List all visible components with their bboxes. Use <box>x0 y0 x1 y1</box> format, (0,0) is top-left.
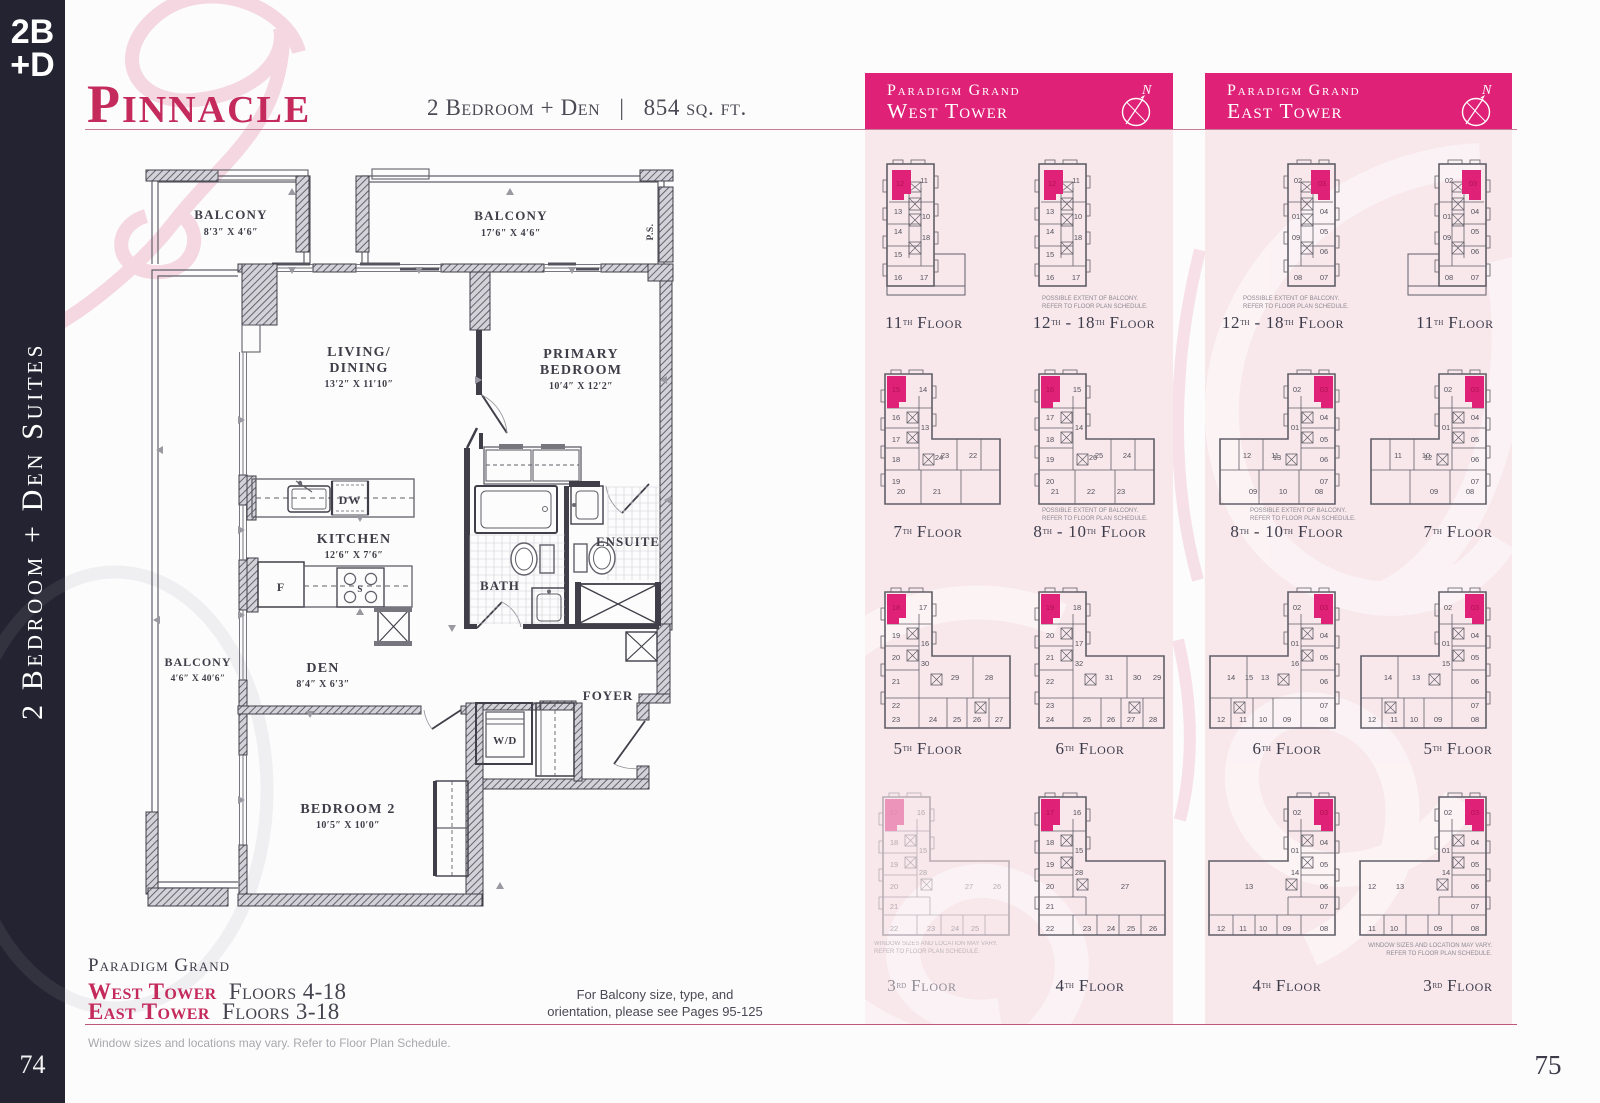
svg-text:03: 03 <box>1469 179 1477 188</box>
svg-text:01: 01 <box>1442 846 1450 855</box>
svg-text:8′3″ X 4′6″: 8′3″ X 4′6″ <box>204 227 258 238</box>
svg-text:08: 08 <box>1320 924 1328 933</box>
svg-text:02: 02 <box>1294 176 1302 185</box>
svg-text:17′6″ X 4′6″: 17′6″ X 4′6″ <box>481 228 541 239</box>
svg-text:16: 16 <box>894 273 902 282</box>
svg-text:24: 24 <box>1046 715 1054 724</box>
svg-text:10′5″ X 10′0″: 10′5″ X 10′0″ <box>316 820 380 831</box>
svg-text:06: 06 <box>1471 677 1479 686</box>
svg-text:13: 13 <box>1396 882 1404 891</box>
svg-text:13: 13 <box>921 423 929 432</box>
svg-text:14: 14 <box>894 227 902 236</box>
svg-text:03: 03 <box>1471 808 1479 817</box>
svg-text:BATH: BATH <box>480 578 520 593</box>
svg-text:26: 26 <box>1149 924 1157 933</box>
svg-text:31: 31 <box>1105 673 1113 682</box>
svg-text:07: 07 <box>1471 477 1479 486</box>
svg-text:02: 02 <box>1444 603 1452 612</box>
svg-text:04: 04 <box>1471 413 1479 422</box>
svg-text:04: 04 <box>1320 838 1328 847</box>
svg-text:17: 17 <box>1075 639 1083 648</box>
svg-text:17: 17 <box>919 603 927 612</box>
svg-text:04: 04 <box>1320 207 1328 216</box>
svg-text:22: 22 <box>1087 487 1095 496</box>
svg-text:32: 32 <box>1075 659 1083 668</box>
svg-text:09: 09 <box>1249 487 1257 496</box>
svg-text:27: 27 <box>1121 882 1129 891</box>
svg-text:04: 04 <box>1471 207 1479 216</box>
svg-text:DEN: DEN <box>306 661 339 676</box>
svg-text:10: 10 <box>1259 715 1267 724</box>
svg-text:26: 26 <box>993 882 1001 891</box>
svg-text:26: 26 <box>973 715 981 724</box>
svg-text:28: 28 <box>985 673 993 682</box>
svg-text:05: 05 <box>1471 227 1479 236</box>
svg-text:10: 10 <box>1390 924 1398 933</box>
svg-text:F: F <box>277 580 285 594</box>
svg-text:06: 06 <box>1471 882 1479 891</box>
svg-text:08: 08 <box>1471 924 1479 933</box>
svg-text:12: 12 <box>1048 179 1056 188</box>
svg-text:27: 27 <box>965 882 973 891</box>
svg-text:18: 18 <box>922 233 930 242</box>
svg-text:08: 08 <box>1294 273 1302 282</box>
svg-text:03: 03 <box>1320 808 1328 817</box>
svg-text:21: 21 <box>1051 487 1059 496</box>
svg-text:30: 30 <box>1133 673 1141 682</box>
svg-text:12: 12 <box>1217 715 1225 724</box>
svg-text:09: 09 <box>1283 715 1291 724</box>
svg-text:23: 23 <box>1117 487 1125 496</box>
svg-text:20: 20 <box>890 882 898 891</box>
svg-text:13: 13 <box>1412 673 1420 682</box>
svg-text:ENSUITE: ENSUITE <box>596 534 660 549</box>
svg-text:15: 15 <box>1245 673 1253 682</box>
svg-text:09: 09 <box>1283 924 1291 933</box>
svg-text:21: 21 <box>1046 653 1054 662</box>
svg-text:14: 14 <box>1227 673 1235 682</box>
svg-text:S: S <box>357 584 362 594</box>
svg-text:11: 11 <box>920 176 928 185</box>
svg-text:17: 17 <box>890 808 898 817</box>
svg-text:29: 29 <box>951 673 959 682</box>
svg-text:06: 06 <box>1320 882 1328 891</box>
svg-text:19: 19 <box>1046 603 1054 612</box>
svg-text:25: 25 <box>971 924 979 933</box>
svg-text:26: 26 <box>1107 715 1115 724</box>
svg-text:08: 08 <box>1466 487 1474 496</box>
svg-text:03: 03 <box>1320 603 1328 612</box>
svg-text:11: 11 <box>1368 924 1376 933</box>
svg-text:08: 08 <box>1445 273 1453 282</box>
svg-text:09: 09 <box>1430 487 1438 496</box>
svg-text:17: 17 <box>920 273 928 282</box>
svg-text:07: 07 <box>1471 273 1479 282</box>
svg-text:21: 21 <box>933 487 941 496</box>
svg-text:23: 23 <box>1046 701 1054 710</box>
svg-text:11: 11 <box>1394 451 1402 460</box>
svg-text:18: 18 <box>1046 435 1054 444</box>
svg-text:27: 27 <box>995 715 1003 724</box>
svg-text:21: 21 <box>892 677 900 686</box>
svg-text:15: 15 <box>1075 846 1083 855</box>
svg-text:W/D: W/D <box>493 735 517 747</box>
svg-text:01: 01 <box>1291 846 1299 855</box>
svg-text:P.S.: P.S. <box>646 224 656 241</box>
svg-text:02: 02 <box>1444 808 1452 817</box>
svg-text:23: 23 <box>927 924 935 933</box>
svg-text:14: 14 <box>1046 227 1054 236</box>
svg-text:12′6″ X 7′6″: 12′6″ X 7′6″ <box>325 550 384 561</box>
svg-text:01: 01 <box>1291 423 1299 432</box>
svg-text:11: 11 <box>1390 715 1398 724</box>
svg-text:25: 25 <box>1083 715 1091 724</box>
svg-text:19: 19 <box>1046 455 1054 464</box>
svg-text:14: 14 <box>1442 868 1450 877</box>
svg-text:05: 05 <box>1320 653 1328 662</box>
svg-text:03: 03 <box>1471 385 1479 394</box>
svg-text:17: 17 <box>1046 808 1054 817</box>
svg-text:15: 15 <box>892 385 900 394</box>
svg-text:16: 16 <box>921 639 929 648</box>
svg-text:22: 22 <box>892 701 900 710</box>
svg-text:18: 18 <box>890 838 898 847</box>
svg-text:14: 14 <box>1291 868 1299 877</box>
svg-text:08: 08 <box>1471 715 1479 724</box>
svg-text:16: 16 <box>1073 808 1081 817</box>
svg-text:20: 20 <box>1046 477 1054 486</box>
svg-text:FOYER: FOYER <box>583 688 634 703</box>
svg-text:BALCONY: BALCONY <box>474 208 547 223</box>
svg-text:11: 11 <box>1072 176 1080 185</box>
svg-text:07: 07 <box>1320 477 1328 486</box>
svg-text:12: 12 <box>896 179 904 188</box>
svg-text:13′2″ X 11′10″: 13′2″ X 11′10″ <box>325 379 394 390</box>
svg-text:20: 20 <box>892 653 900 662</box>
svg-text:02: 02 <box>1293 385 1301 394</box>
svg-text:04: 04 <box>1471 631 1479 640</box>
svg-text:04: 04 <box>1471 838 1479 847</box>
svg-text:05: 05 <box>1320 860 1328 869</box>
svg-text:09: 09 <box>1292 233 1300 242</box>
svg-text:20: 20 <box>897 487 905 496</box>
svg-text:16: 16 <box>1046 385 1054 394</box>
svg-text:27: 27 <box>1127 715 1135 724</box>
svg-text:08: 08 <box>1320 715 1328 724</box>
svg-text:13: 13 <box>1245 882 1253 891</box>
svg-text:06: 06 <box>1320 677 1328 686</box>
svg-text:06: 06 <box>1320 247 1328 256</box>
svg-text:28: 28 <box>1075 868 1083 877</box>
svg-text:05: 05 <box>1471 435 1479 444</box>
svg-text:01: 01 <box>1442 639 1450 648</box>
svg-text:24: 24 <box>1107 924 1115 933</box>
svg-text:01: 01 <box>1442 423 1450 432</box>
svg-text:10: 10 <box>1074 212 1082 221</box>
svg-text:17: 17 <box>892 435 900 444</box>
svg-text:19: 19 <box>890 860 898 869</box>
svg-text:09: 09 <box>1443 233 1451 242</box>
svg-text:12: 12 <box>1217 924 1225 933</box>
svg-text:09: 09 <box>1434 715 1442 724</box>
svg-text:01: 01 <box>1292 212 1300 221</box>
svg-text:17: 17 <box>1072 273 1080 282</box>
svg-text:18: 18 <box>892 455 900 464</box>
svg-text:14: 14 <box>1075 423 1083 432</box>
svg-text:13: 13 <box>1261 673 1269 682</box>
svg-text:13: 13 <box>894 207 902 216</box>
svg-text:14: 14 <box>919 385 927 394</box>
svg-text:07: 07 <box>1320 902 1328 911</box>
svg-text:4′6″ X 40′6″: 4′6″ X 40′6″ <box>171 674 226 684</box>
svg-text:07: 07 <box>1471 701 1479 710</box>
svg-text:DW: DW <box>339 493 362 507</box>
svg-text:19: 19 <box>892 477 900 486</box>
svg-text:07: 07 <box>1320 273 1328 282</box>
svg-text:08: 08 <box>1315 487 1323 496</box>
svg-text:15: 15 <box>919 846 927 855</box>
svg-text:02: 02 <box>1293 808 1301 817</box>
svg-text:06: 06 <box>1471 455 1479 464</box>
svg-text:07: 07 <box>1471 902 1479 911</box>
svg-text:22: 22 <box>1046 677 1054 686</box>
svg-text:19: 19 <box>892 631 900 640</box>
svg-text:10: 10 <box>1422 451 1430 460</box>
svg-text:KITCHEN: KITCHEN <box>317 532 392 547</box>
svg-text:05: 05 <box>1471 653 1479 662</box>
svg-text:22: 22 <box>1046 924 1054 933</box>
svg-text:16: 16 <box>1046 273 1054 282</box>
svg-text:21: 21 <box>1046 902 1054 911</box>
svg-text:10: 10 <box>1410 715 1418 724</box>
svg-text:16: 16 <box>892 413 900 422</box>
svg-text:05: 05 <box>1320 227 1328 236</box>
svg-text:04: 04 <box>1320 631 1328 640</box>
svg-text:18: 18 <box>1074 233 1082 242</box>
svg-text:01: 01 <box>1443 212 1451 221</box>
svg-text:BEDROOM 2: BEDROOM 2 <box>300 802 395 817</box>
svg-text:25: 25 <box>953 715 961 724</box>
svg-text:03: 03 <box>1318 179 1326 188</box>
svg-text:BALCONY: BALCONY <box>164 655 231 669</box>
svg-text:15: 15 <box>1442 659 1450 668</box>
svg-text:29: 29 <box>1153 673 1161 682</box>
svg-text:20: 20 <box>1046 631 1054 640</box>
svg-text:LIVING/: LIVING/ <box>327 345 391 360</box>
svg-text:03: 03 <box>1320 385 1328 394</box>
svg-text:02: 02 <box>1445 176 1453 185</box>
svg-text:BALCONY: BALCONY <box>194 207 267 222</box>
svg-text:PRIMARY: PRIMARY <box>543 347 619 362</box>
svg-text:23: 23 <box>1083 924 1091 933</box>
svg-text:11: 11 <box>1271 451 1279 460</box>
svg-text:10: 10 <box>1259 924 1267 933</box>
svg-text:28: 28 <box>1149 715 1157 724</box>
svg-text:25: 25 <box>1127 924 1135 933</box>
svg-text:06: 06 <box>1320 455 1328 464</box>
svg-text:04: 04 <box>1320 413 1328 422</box>
svg-text:12: 12 <box>1368 715 1376 724</box>
svg-text:DINING: DINING <box>329 361 388 376</box>
svg-text:17: 17 <box>1046 413 1054 422</box>
svg-text:19: 19 <box>1046 860 1054 869</box>
svg-text:10′4″ X 12′2″: 10′4″ X 12′2″ <box>549 381 613 392</box>
svg-text:23: 23 <box>941 451 949 460</box>
svg-text:11: 11 <box>1239 715 1247 724</box>
svg-text:25: 25 <box>1095 451 1103 460</box>
svg-text:BEDROOM: BEDROOM <box>540 363 622 378</box>
svg-text:10: 10 <box>922 212 930 221</box>
svg-text:18: 18 <box>892 603 900 612</box>
svg-text:09: 09 <box>1434 924 1442 933</box>
svg-text:05: 05 <box>1471 860 1479 869</box>
svg-text:8′4″ X 6′3″: 8′4″ X 6′3″ <box>296 679 349 690</box>
svg-text:02: 02 <box>1293 603 1301 612</box>
svg-text:01: 01 <box>1291 639 1299 648</box>
svg-text:07: 07 <box>1320 701 1328 710</box>
svg-text:22: 22 <box>969 451 977 460</box>
svg-text:N: N <box>1481 83 1492 98</box>
svg-text:24: 24 <box>951 924 959 933</box>
svg-text:14: 14 <box>1384 673 1392 682</box>
svg-text:11: 11 <box>1239 924 1247 933</box>
svg-text:16: 16 <box>1291 659 1299 668</box>
svg-text:12: 12 <box>1368 882 1376 891</box>
svg-text:23: 23 <box>892 715 900 724</box>
svg-text:24: 24 <box>929 715 937 724</box>
svg-text:18: 18 <box>1073 603 1081 612</box>
svg-text:30: 30 <box>921 659 929 668</box>
svg-text:28: 28 <box>919 868 927 877</box>
svg-text:15: 15 <box>894 250 902 259</box>
svg-text:15: 15 <box>1046 250 1054 259</box>
svg-text:18: 18 <box>1046 838 1054 847</box>
svg-text:20: 20 <box>1046 882 1054 891</box>
svg-text:24: 24 <box>1123 451 1131 460</box>
svg-text:10: 10 <box>1279 487 1287 496</box>
svg-text:02: 02 <box>1444 385 1452 394</box>
svg-text:N: N <box>1141 83 1152 98</box>
svg-text:22: 22 <box>890 924 898 933</box>
svg-text:15: 15 <box>1073 385 1081 394</box>
svg-text:03: 03 <box>1471 603 1479 612</box>
svg-text:12: 12 <box>1243 451 1251 460</box>
svg-text:05: 05 <box>1320 435 1328 444</box>
svg-text:16: 16 <box>917 808 925 817</box>
svg-text:06: 06 <box>1471 247 1479 256</box>
svg-text:13: 13 <box>1046 207 1054 216</box>
svg-text:21: 21 <box>890 902 898 911</box>
